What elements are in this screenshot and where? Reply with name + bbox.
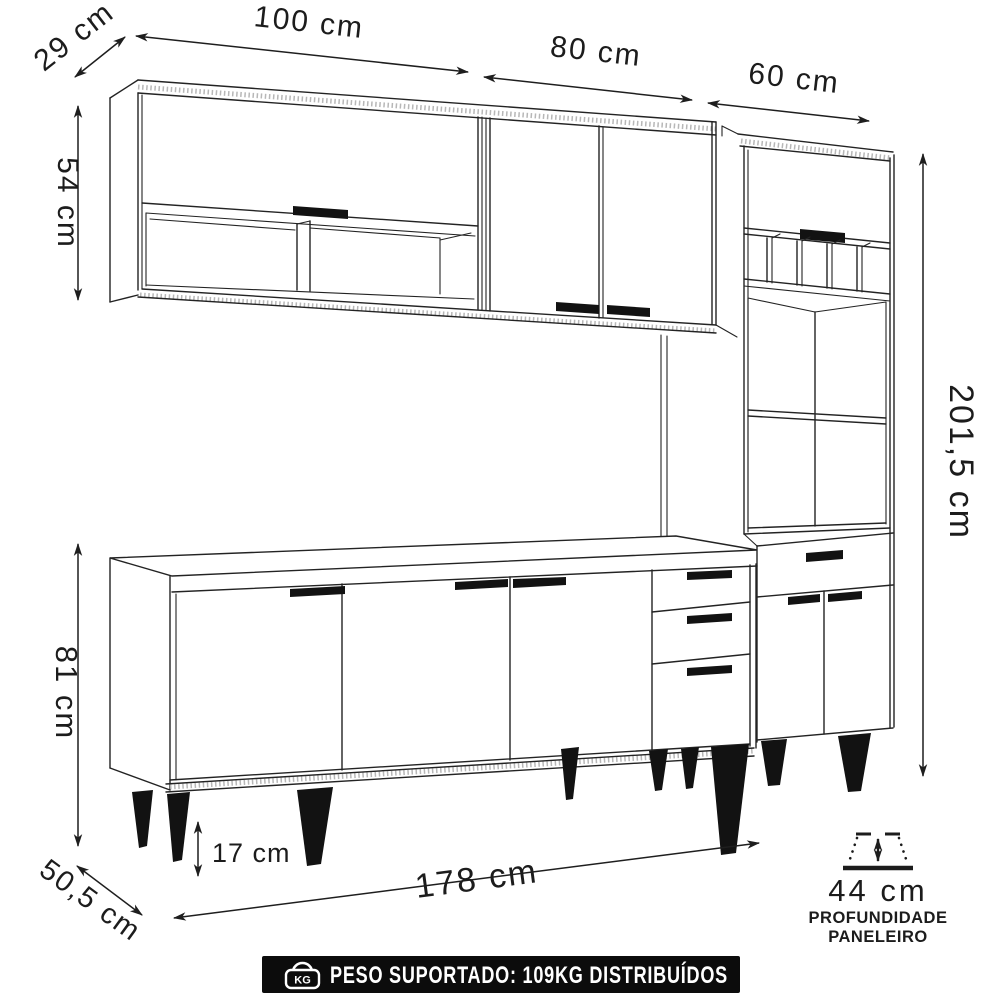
- dim-201cm-label: 201,5 cm: [942, 384, 980, 540]
- kitchen-dimension-diagram: 29 cm 100 cm 80 cm 60 cm 54 cm 201,5 cm …: [0, 0, 1000, 1000]
- banner-text: PESO SUPORTADO: 109KG DISTRIBUÍDOS: [330, 961, 728, 989]
- dim-54cm-label: 54 cm: [51, 157, 84, 249]
- background: [0, 0, 1000, 1000]
- diagram-canvas: 29 cm 100 cm 80 cm 60 cm 54 cm 201,5 cm …: [0, 0, 1000, 1000]
- depth-note-line2: PANELEIRO: [828, 928, 928, 946]
- dim-81cm-label: 81 cm: [49, 646, 84, 740]
- dim-17cm-label: 17 cm: [212, 838, 291, 868]
- weight-banner: KG PESO SUPORTADO: 109KG DISTRIBUÍDOS: [262, 956, 740, 993]
- depth-note-line1: PROFUNDIDADE: [809, 909, 948, 927]
- kg-icon-label: KG: [294, 975, 311, 987]
- dim-44cm-label: 44 cm: [828, 873, 927, 908]
